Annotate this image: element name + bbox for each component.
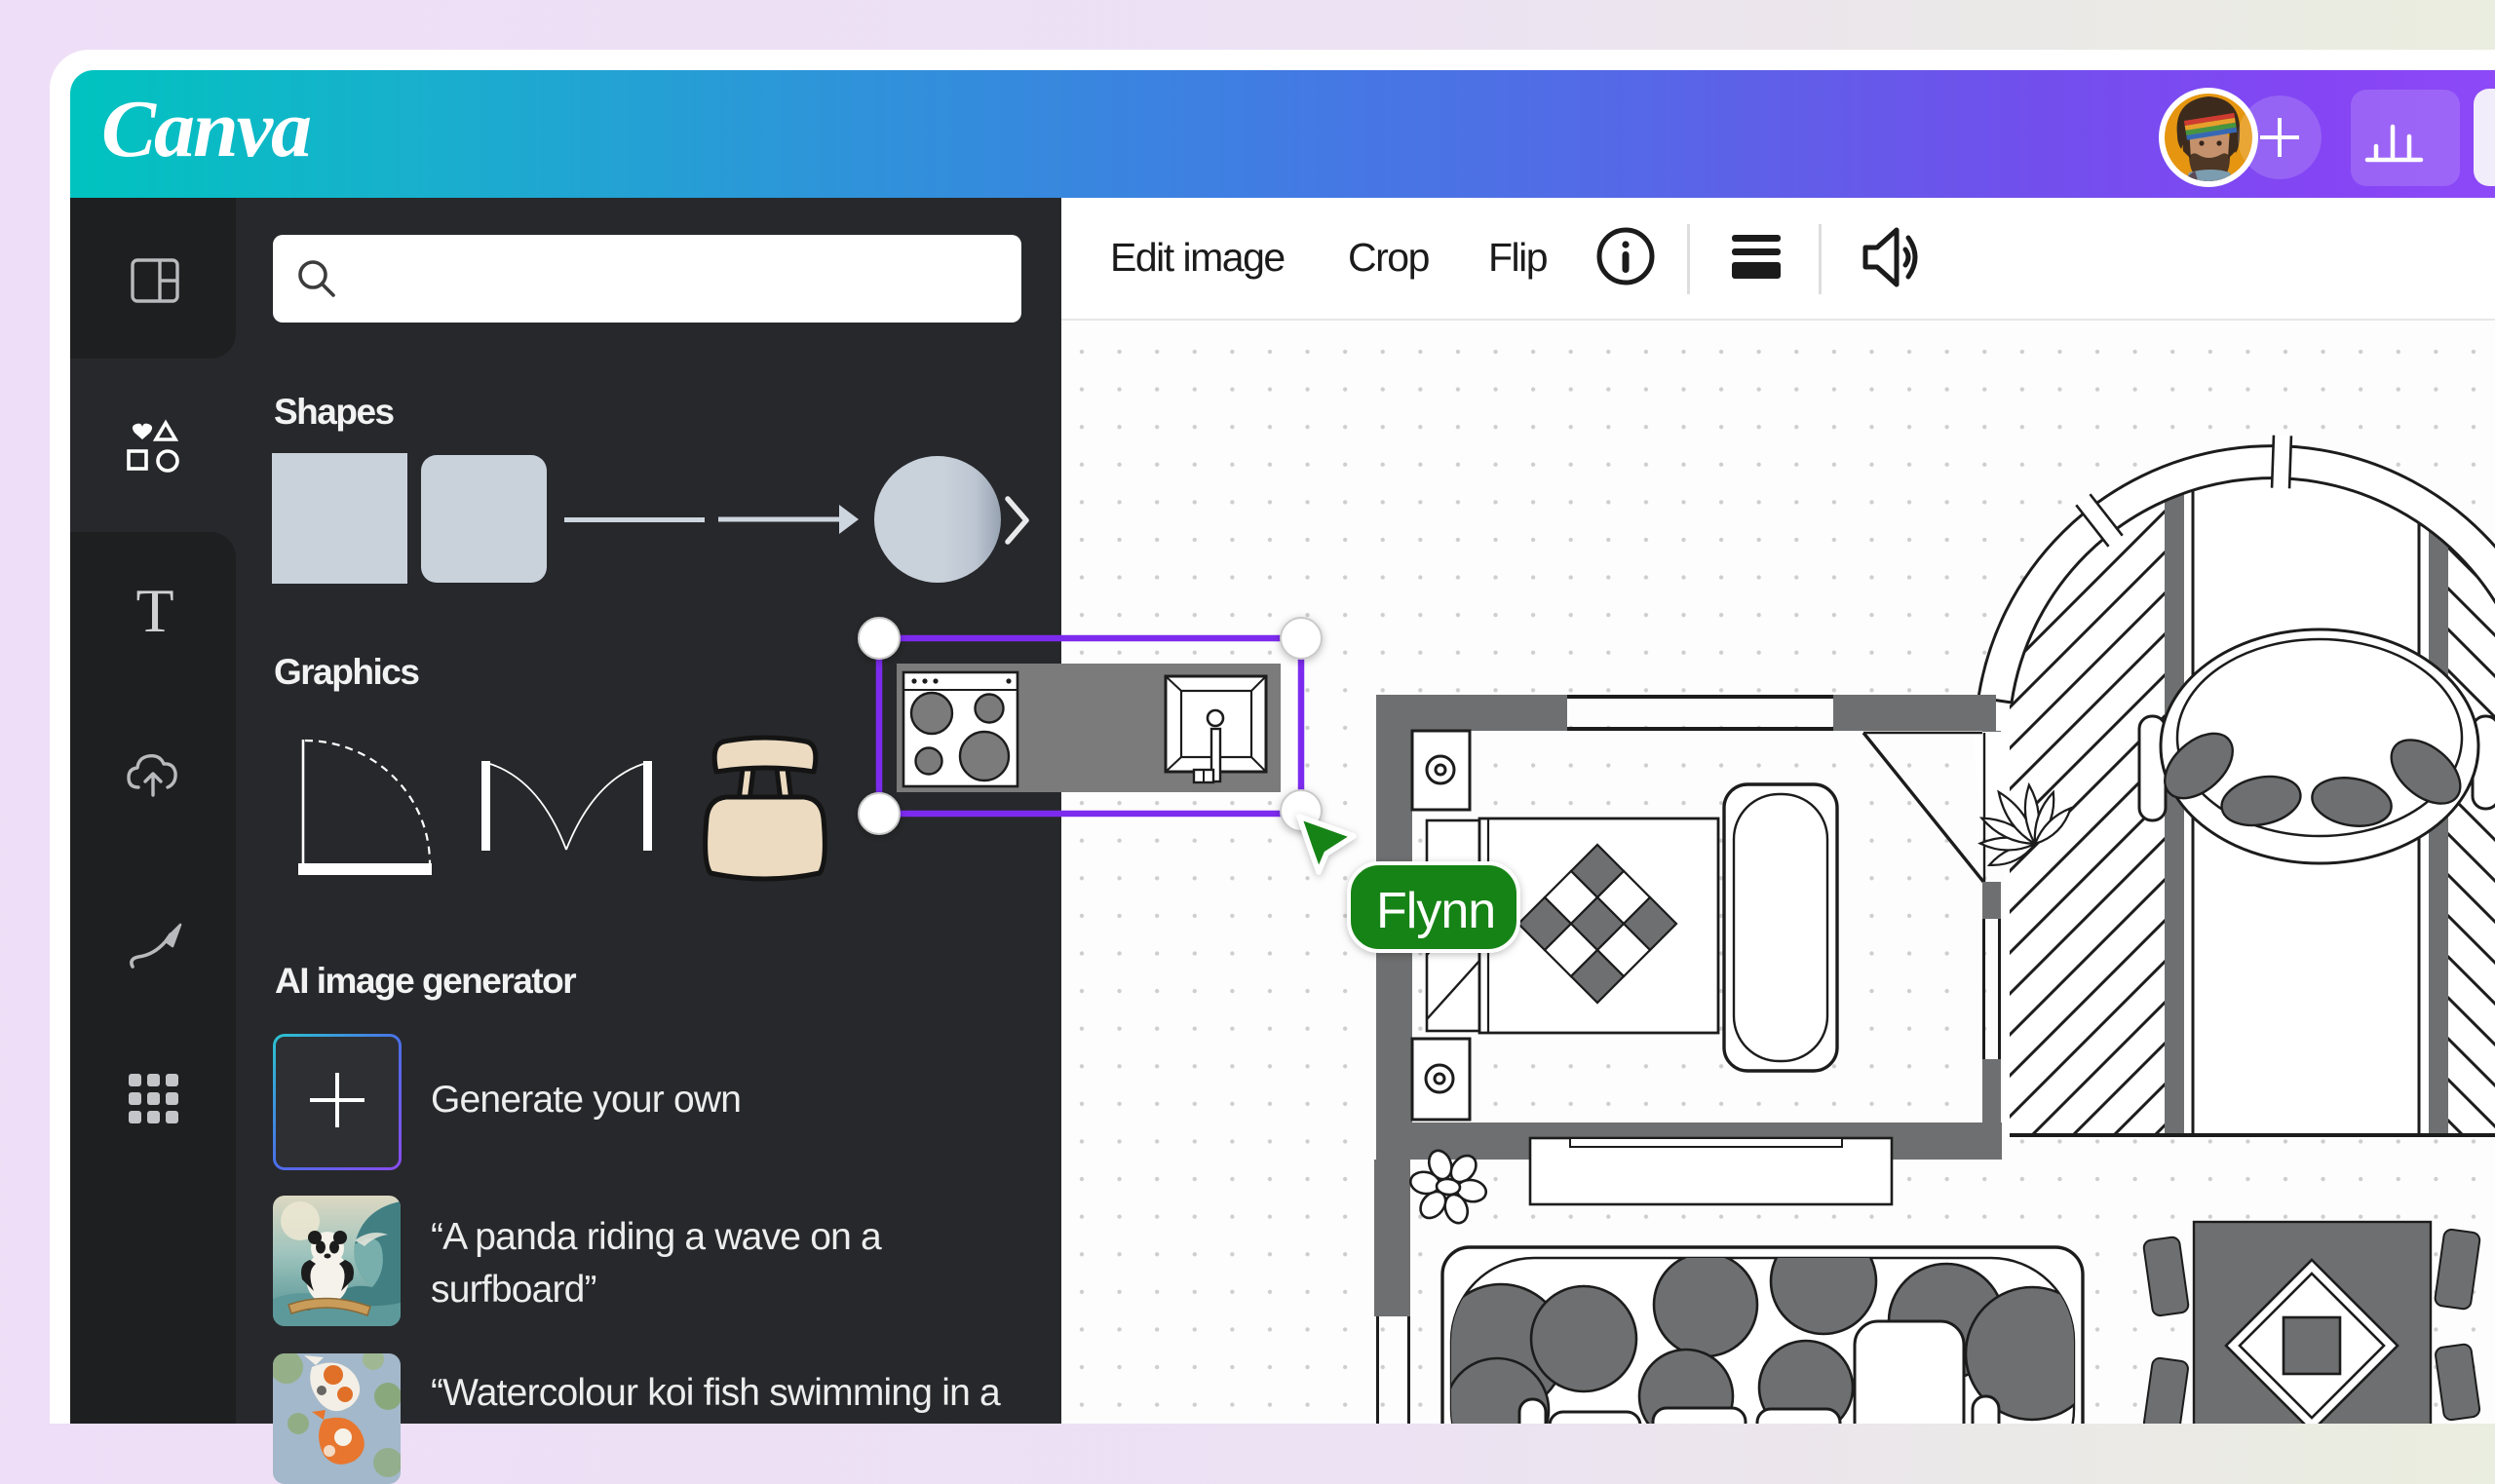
svg-text:Flynn: Flynn bbox=[1376, 883, 1495, 939]
